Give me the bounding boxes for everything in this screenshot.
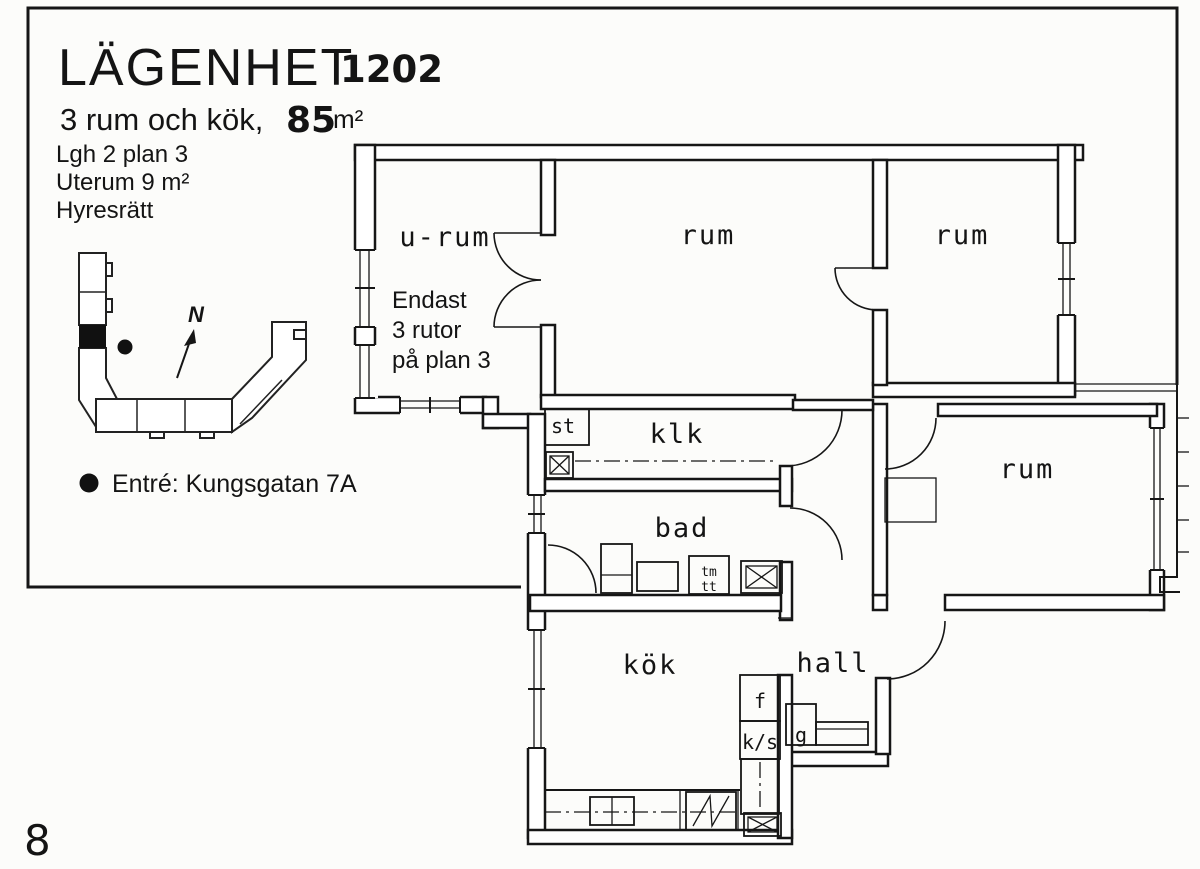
entrance-bullet-icon [80, 474, 99, 493]
label-rum-right: rum [1000, 454, 1055, 485]
shaft-box-kok [744, 813, 781, 836]
window-urum-left-lower [352, 345, 378, 398]
shaft-box-st [546, 452, 573, 478]
apartment-location-marker [79, 325, 106, 348]
stove-icon [686, 792, 736, 830]
label-bad: bad [655, 513, 710, 544]
door-urum-double [494, 233, 541, 327]
note-line-3: på plan 3 [392, 347, 491, 374]
windows [352, 243, 1167, 748]
north-arrow-icon: N [177, 302, 205, 378]
hall-bench [816, 722, 868, 745]
area-value: 85 [286, 100, 336, 141]
floor-plan-page: LÄGENHET 1202 3 rum och kök, 85 m² Lgh 2… [0, 0, 1200, 869]
window-urum-bottom [400, 394, 460, 416]
bad-cabinet [601, 544, 632, 593]
entrance-note-text: Entré: Kungsgatan 7A [112, 470, 357, 498]
door-klk [786, 410, 842, 466]
label-tt: tt [701, 580, 717, 595]
note-line-1: Endast [392, 287, 467, 314]
rooms-line: 3 rum och kök, [60, 102, 263, 137]
window-urum-left-upper [352, 250, 378, 327]
door-rum-right [885, 418, 936, 469]
shaft-box-bad [741, 561, 782, 593]
note-line-2: 3 rutor [392, 317, 461, 344]
area-unit: m² [333, 104, 364, 134]
site-plan-map: N [79, 253, 306, 438]
label-st: st [551, 414, 575, 438]
header-block: LÄGENHET 1202 3 rum och kök, 85 m² Lgh 2… [56, 39, 443, 224]
north-label: N [188, 302, 205, 327]
window-kok [525, 630, 548, 748]
page-title: LÄGENHET [58, 39, 354, 97]
bad-tub [637, 562, 678, 591]
detail-line-2: Uterum 9 m² [56, 169, 189, 196]
door-bad [790, 508, 842, 560]
window-rum-top-right [1055, 243, 1078, 315]
label-kok: kök [623, 650, 678, 681]
apartment-number: 1202 [340, 48, 443, 91]
label-rum-top-middle: rum [681, 220, 736, 251]
wardrobe-dashed-square [885, 478, 936, 522]
page-number: 8 [24, 816, 51, 865]
detail-line-3: Hyresrätt [56, 197, 154, 224]
kitchen-counter [545, 790, 740, 830]
label-ks: k/s [742, 730, 778, 754]
floor-plan-drawing: LÄGENHET 1202 3 rum och kök, 85 m² Lgh 2… [0, 0, 1200, 869]
label-rum-top-right: rum [935, 220, 990, 251]
label-f: f [754, 689, 766, 713]
window-rum-right [1147, 428, 1167, 570]
label-klk: klk [650, 419, 705, 450]
detail-line-1: Lgh 2 plan 3 [56, 141, 188, 168]
label-hall: hall [796, 648, 869, 679]
window-bad [525, 495, 548, 533]
label-tm: tm [701, 565, 717, 580]
entrance-dot-icon [118, 340, 133, 355]
door-entrance [887, 621, 945, 679]
door-bad-cabinet [548, 545, 596, 593]
door-rum-to-rum [835, 268, 877, 310]
entrance-note: Entré: Kungsgatan 7A [80, 470, 357, 498]
sink-icon [590, 797, 634, 825]
label-urum: u-rum [399, 222, 490, 253]
label-g: g [795, 723, 807, 747]
